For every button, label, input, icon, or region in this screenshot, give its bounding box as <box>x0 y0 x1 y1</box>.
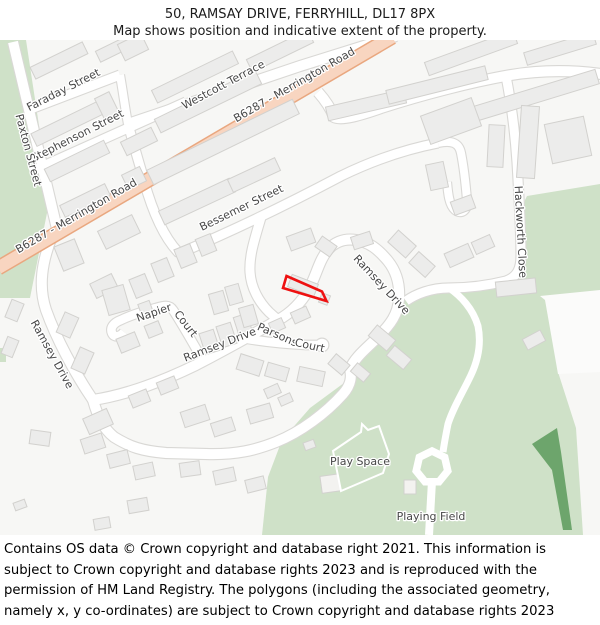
map: B6287 - Merrington Road B6287 - Merringt… <box>0 40 600 535</box>
building <box>93 517 111 531</box>
building <box>487 125 505 168</box>
property-map-report: 50, RAMSAY DRIVE, FERRYHILL, DL17 8PX Ma… <box>0 0 600 625</box>
footpath-south <box>429 481 432 535</box>
page-title: 50, RAMSAY DRIVE, FERRYHILL, DL17 8PX <box>0 6 600 23</box>
building <box>127 497 149 513</box>
building <box>404 480 416 494</box>
area-label-playing-field: Playing Field <box>397 510 466 523</box>
building <box>179 461 201 478</box>
map-canvas: B6287 - Merrington Road B6287 - Merringt… <box>0 40 600 535</box>
area-label-play-space: Play Space <box>330 455 390 468</box>
building <box>544 116 591 163</box>
map-header: 50, RAMSAY DRIVE, FERRYHILL, DL17 8PX Ma… <box>0 0 600 40</box>
copyright-notice: Contains OS data © Crown copyright and d… <box>0 535 600 625</box>
building <box>29 430 51 447</box>
page-subtitle: Map shows position and indicative extent… <box>0 23 600 40</box>
